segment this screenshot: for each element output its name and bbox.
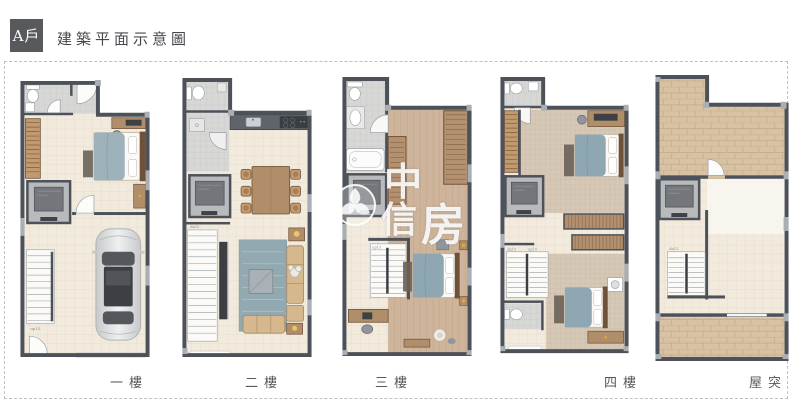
roof-terrace-upper — [657, 77, 786, 175]
rug — [83, 150, 93, 177]
toilet-icon — [504, 83, 522, 94]
floor-plan-roof-drawing: dn15 — [655, 75, 790, 363]
elevator — [347, 174, 386, 216]
shoe-cabinet — [25, 119, 40, 179]
stairs-up-label: up15 — [528, 247, 537, 251]
nightstand — [437, 240, 449, 250]
floor-plan-2f: dn15 — [182, 75, 312, 363]
unit-badge-label: A戶 — [13, 25, 41, 46]
dining-table — [241, 166, 301, 214]
roof-terrace-lower — [657, 317, 786, 359]
kitchen-counter — [230, 115, 309, 130]
bed — [94, 132, 146, 182]
elevator — [505, 176, 543, 216]
floor-plan-1f: up15 — [20, 75, 150, 363]
toilet-icon-2 — [504, 309, 522, 320]
stairs: dn15 — [187, 225, 217, 341]
toilet-icon — [186, 86, 204, 100]
shower — [189, 119, 204, 132]
floor-plan-4f-drawing: dn15 up15 — [500, 75, 630, 363]
floor-plan-roof: dn15 — [655, 75, 790, 363]
stairs-dn-label: dn15 — [190, 225, 199, 229]
unit-badge: A戶 — [10, 19, 43, 52]
floor-plan-3f-drawing: up15 — [342, 75, 472, 363]
elevator — [189, 175, 230, 217]
stairs: dn15 up15 — [506, 247, 548, 297]
floor-label-roof: 屋突 — [749, 372, 787, 391]
stairs: up15 — [370, 244, 406, 298]
floor-label-1f: 一樓 — [110, 372, 148, 391]
floor-plan-3f: up15 — [342, 75, 472, 363]
stairs-dn-label: dn15 — [507, 247, 516, 251]
floor-plan-4f: dn15 up15 — [500, 75, 630, 363]
wardrobe-right — [444, 111, 468, 184]
bed — [413, 253, 460, 299]
car — [92, 229, 145, 340]
bathtub — [346, 148, 384, 170]
floor-plan-1f-drawing: up15 — [20, 75, 150, 363]
stairs-up-label: up15 — [372, 245, 381, 249]
page-title: 建築平面示意圖 — [57, 28, 190, 49]
wardrobe-row-2 — [572, 235, 624, 250]
stairs: up15 — [26, 250, 54, 331]
floor-label-3f: 三樓 — [375, 372, 413, 391]
vanity-sink — [346, 107, 364, 129]
stairs: dn15 — [667, 247, 705, 296]
bench — [404, 339, 430, 347]
floorplan-sheet: A戶 建築平面示意圖 — [0, 0, 800, 407]
elevator — [27, 181, 70, 223]
stairs-up-label: up15 — [30, 326, 41, 331]
floor-label-2f: 二樓 — [245, 372, 283, 391]
rug — [403, 262, 412, 292]
wardrobe-left — [388, 137, 406, 205]
stairs-dn-label: dn15 — [669, 247, 678, 251]
floor-label-4f: 四樓 — [604, 372, 642, 391]
washer — [608, 278, 623, 292]
closet — [504, 111, 518, 173]
sink-icon — [25, 103, 34, 112]
floor-plan-2f-drawing: dn15 — [182, 75, 312, 363]
wardrobe-row-1 — [564, 214, 624, 229]
toilet-icon — [26, 85, 39, 102]
elevator — [659, 179, 699, 219]
tv-cabinet — [219, 242, 228, 319]
